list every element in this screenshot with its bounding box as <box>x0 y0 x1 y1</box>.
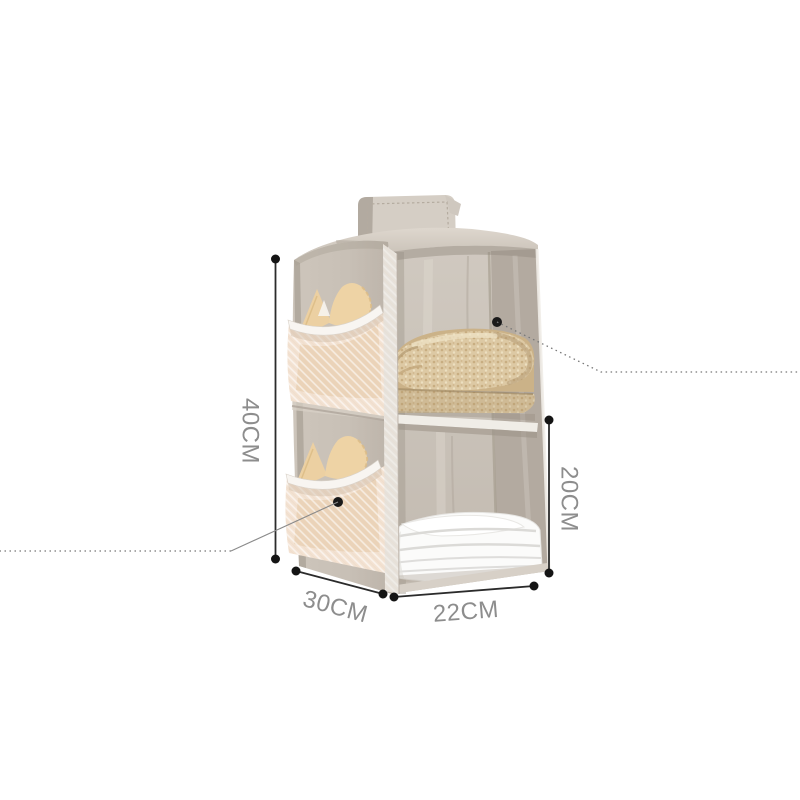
width-label: 22CM <box>432 596 500 628</box>
product-photo-svg: 40CM 20CM 30CM 22CM <box>0 0 800 800</box>
depth-dot-left <box>292 567 301 576</box>
knit-sweater <box>391 329 535 413</box>
compartment-dot-top <box>545 416 554 425</box>
front-corner-post <box>383 244 399 594</box>
width-dot-left <box>390 593 399 602</box>
product-image-canvas: 40CM 20CM 30CM 22CM <box>0 0 800 800</box>
dimension-height: 40CM <box>237 255 280 564</box>
compartment-dot-bottom <box>545 569 554 578</box>
height-label: 40CM <box>237 398 264 464</box>
depth-label: 30CM <box>300 585 371 628</box>
depth-dot-right <box>379 590 388 599</box>
height-dot-top <box>271 255 280 264</box>
height-dot-bottom <box>271 555 280 564</box>
dimension-compartment-height: 20CM <box>545 416 583 578</box>
corner-post-mesh-texture <box>383 244 399 594</box>
hanging-organizer-photo <box>285 195 549 594</box>
width-dot-right <box>530 582 539 591</box>
compartment-label: 20CM <box>556 466 583 532</box>
